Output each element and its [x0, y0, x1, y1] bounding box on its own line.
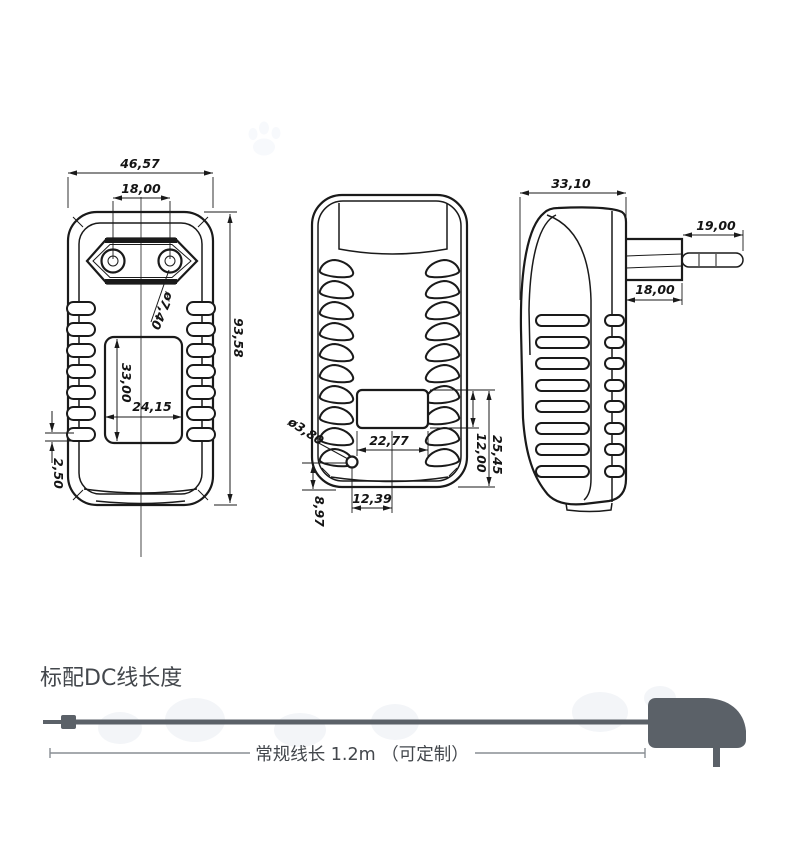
adapter-pin — [713, 748, 720, 767]
front-view: 46,57 18,00 ø7,40 93,58 33,00 24,15 2,50 — [45, 156, 246, 557]
side-vents — [536, 315, 624, 477]
cable-length-dimension: 常规线长 1.2m （可定制） — [50, 745, 645, 765]
dc-cable-heading: 标配DC线长度 — [40, 666, 182, 691]
dim-back-label-height: 12,00 — [474, 433, 489, 473]
plug-base — [626, 239, 743, 280]
watermark-paw — [249, 122, 281, 156]
dc-plug-body — [61, 715, 76, 729]
cable-length-label: 常规线长 1.2m （可定制） — [255, 745, 469, 765]
dim-front-pin-spacing: 18,00 — [121, 181, 161, 196]
dim-back-cord-hole-offset-x: 12,39 — [352, 491, 392, 506]
dim-back-cord-hole-offset-y: 8,97 — [312, 496, 327, 527]
dim-front-overall-width: 46,57 — [119, 156, 160, 171]
cord-hole — [347, 457, 358, 468]
watermark-logo — [98, 686, 676, 747]
dim-side-body-depth: 33,10 — [551, 176, 591, 191]
dim-side-plug-base-depth: 18,00 — [635, 282, 675, 297]
back-view: ø3,80 22,77 12,39 8,97 12,00 25,45 — [285, 195, 505, 527]
technical-drawing: 46,57 18,00 ø7,40 93,58 33,00 24,15 2,50 — [0, 0, 790, 862]
plug-recess — [87, 239, 197, 284]
dim-front-pin-hole-diameter: ø7,40 — [148, 289, 178, 332]
back-label-area — [357, 390, 428, 428]
plug-pin — [682, 253, 743, 267]
dim-front-overall-height: 93,58 — [231, 318, 246, 358]
adapter-dimension-page: 46,57 18,00 ø7,40 93,58 33,00 24,15 2,50 — [0, 0, 790, 862]
dim-back-lower-section-height: 25,45 — [490, 435, 505, 475]
dim-front-label-width: 24,15 — [132, 399, 172, 414]
side-view: 33,10 19,00 18,00 — [520, 176, 743, 512]
dim-back-label-width: 22,77 — [369, 433, 409, 448]
adapter-body — [648, 698, 746, 748]
dim-side-pin-length: 19,00 — [696, 218, 736, 233]
dim-front-label-height: 33,00 — [119, 363, 134, 403]
dim-front-vent-gap: 2,50 — [51, 458, 66, 489]
